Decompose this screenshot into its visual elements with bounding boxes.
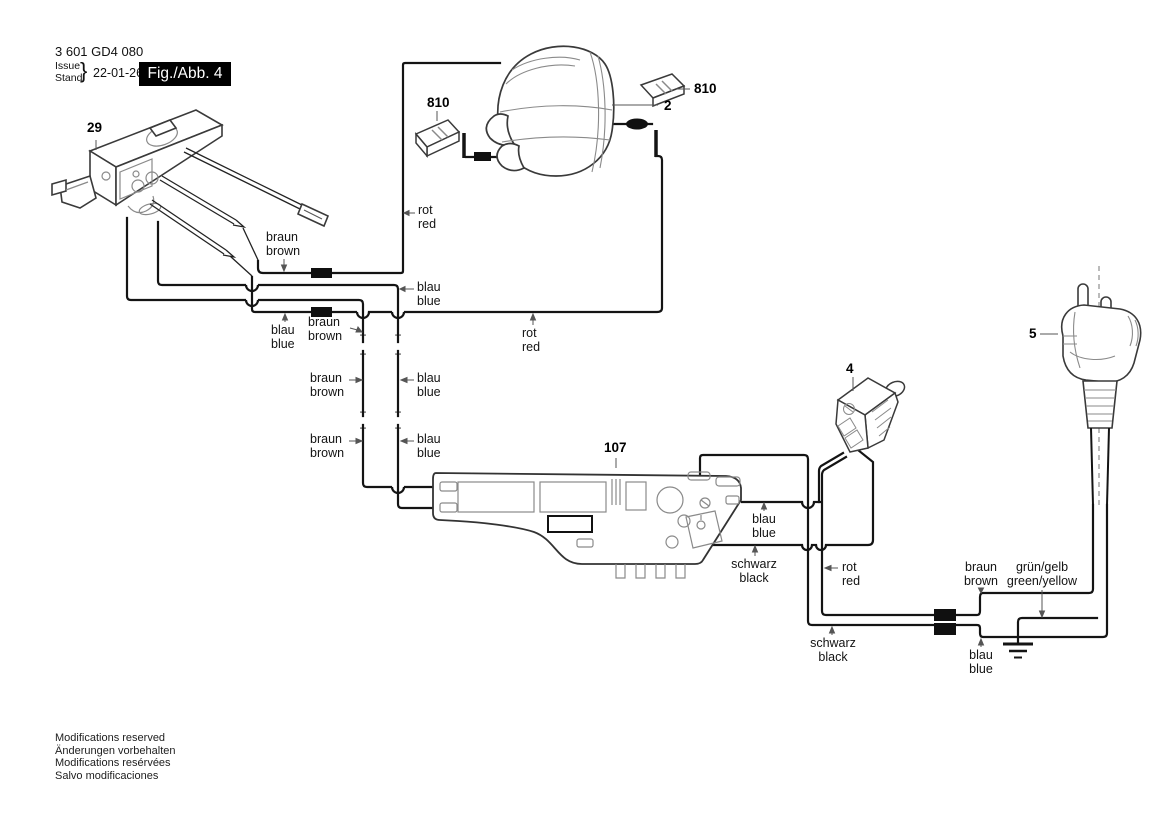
plus-mark-3: + <box>355 406 371 418</box>
minus-mark-3: − <box>390 406 406 418</box>
diagram-artwork <box>0 0 1169 826</box>
plus-mark-1: + <box>355 329 371 341</box>
label-brush-right-810: 810 <box>694 81 717 96</box>
wire-label-braun-switch: braunbrown <box>266 231 300 258</box>
footer-line-de: Änderungen vorbehalten <box>55 745 175 758</box>
brush-right-drawing <box>641 74 684 157</box>
wire-label-blau-col-1: blaublue <box>417 372 441 399</box>
plus-mark-4: + <box>355 422 371 434</box>
minus-mark-4: − <box>390 422 406 434</box>
wire-label-rot-return: rotred <box>522 327 540 354</box>
wire-label-gruen-gelb: grün/gelbgreen/yellow <box>1004 561 1080 588</box>
wire-label-blau-module: blaublue <box>748 513 780 540</box>
wire-label-schwarz-lower: schwarzblack <box>806 637 860 664</box>
minus-mark-1: − <box>390 329 406 341</box>
minus-mark-2: − <box>390 348 406 360</box>
wire-label-braun-col-1: braunbrown <box>310 372 344 399</box>
issue-stand-label: Issue Stand <box>55 61 82 84</box>
footer-line-es: Salvo modificaciones <box>55 770 175 783</box>
issue-label: Issue <box>55 61 82 73</box>
wire-label-braun-col-2: braunbrown <box>310 433 344 460</box>
brush-left-drawing <box>416 120 464 158</box>
issue-brace: } <box>80 58 87 84</box>
wire-label-blau-mid-right: blaublue <box>417 281 441 308</box>
module-drawing <box>433 472 741 578</box>
label-field-coil-2: 2 <box>664 98 672 113</box>
label-switch-29: 29 <box>87 120 102 135</box>
label-connector-4: 4 <box>846 361 854 376</box>
stand-label: Stand <box>55 73 82 85</box>
plug-drawing <box>1062 266 1141 508</box>
wire-label-blau-left: blaublue <box>271 324 295 351</box>
label-plug-5: 5 <box>1029 326 1037 341</box>
figure-label: Fig./Abb. 4 <box>148 65 223 83</box>
issue-date: 22-01-26 <box>93 66 143 80</box>
wire-label-braun-cord: braunbrown <box>960 561 1002 588</box>
footer-line-en: Modifications reserved <box>55 732 175 745</box>
wire-label-schwarz-module: schwarzblack <box>726 558 782 585</box>
figure-label-box: Fig./Abb. 4 <box>139 62 231 86</box>
part-number: 3 601 GD4 080 <box>55 44 143 59</box>
label-brush-left-810: 810 <box>427 95 450 110</box>
footer-line-fr: Modifications resérvées <box>55 757 175 770</box>
earth-ground-symbol <box>1003 644 1033 658</box>
wiring-diagram-page: 3 601 GD4 080 Issue Stand } 22-01-26 Fig… <box>0 0 1169 826</box>
wire-label-braun-mid: braunbrown <box>308 316 342 343</box>
wire-label-blau-cord: blaublue <box>964 649 998 676</box>
wire-label-rot-top: rotred <box>418 204 436 231</box>
field-coil-drawing <box>486 46 613 176</box>
plus-mark-2: + <box>355 348 371 360</box>
wire-label-rot-connector: rotred <box>842 561 860 588</box>
label-module-107: 107 <box>604 440 627 455</box>
cord-connector-drawing <box>836 378 907 452</box>
wire-label-blau-col-2: blaublue <box>417 433 441 460</box>
footer-disclaimer: Modifications reserved Änderungen vorbeh… <box>55 732 175 782</box>
